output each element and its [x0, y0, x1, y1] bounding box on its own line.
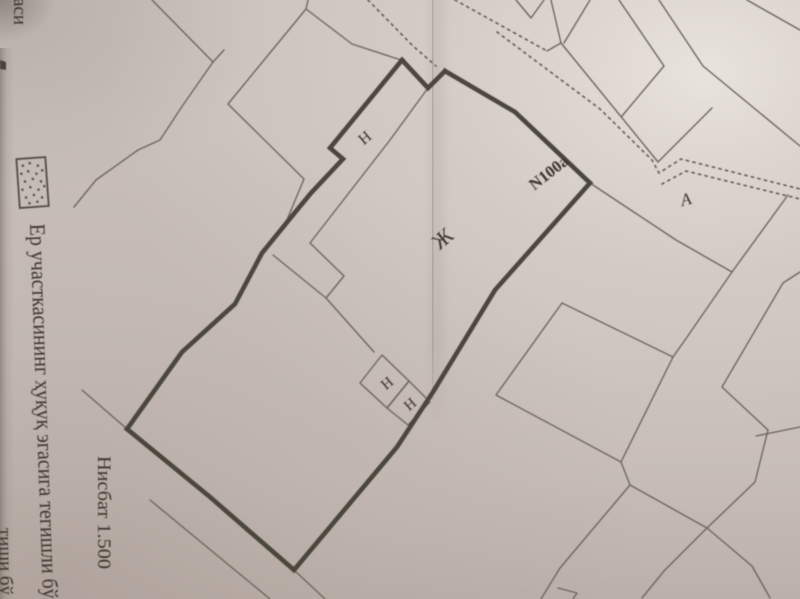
svg-text:тиши бў: тиши бў [0, 528, 16, 596]
svg-text:аси: аси [9, 0, 30, 25]
svg-text:Нисбат 1.500: Нисбат 1.500 [93, 456, 114, 569]
